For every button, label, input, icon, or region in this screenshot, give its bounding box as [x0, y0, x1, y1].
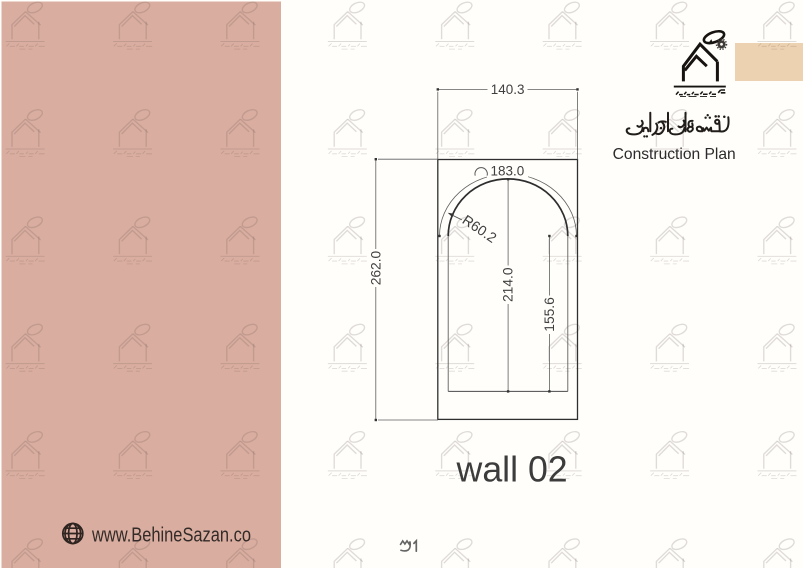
svg-text:Construction Plan: Construction Plan: [613, 146, 736, 163]
svg-text:140.3: 140.3: [491, 82, 525, 98]
svg-text:155.6: 155.6: [542, 297, 558, 332]
svg-text:262.0: 262.0: [369, 251, 385, 286]
svg-text:www.BehineSazan.co: www.BehineSazan.co: [91, 524, 251, 547]
svg-text:214.0: 214.0: [501, 267, 517, 302]
svg-text:183.0: 183.0: [491, 163, 525, 179]
svg-text:wall 02: wall 02: [456, 449, 568, 489]
